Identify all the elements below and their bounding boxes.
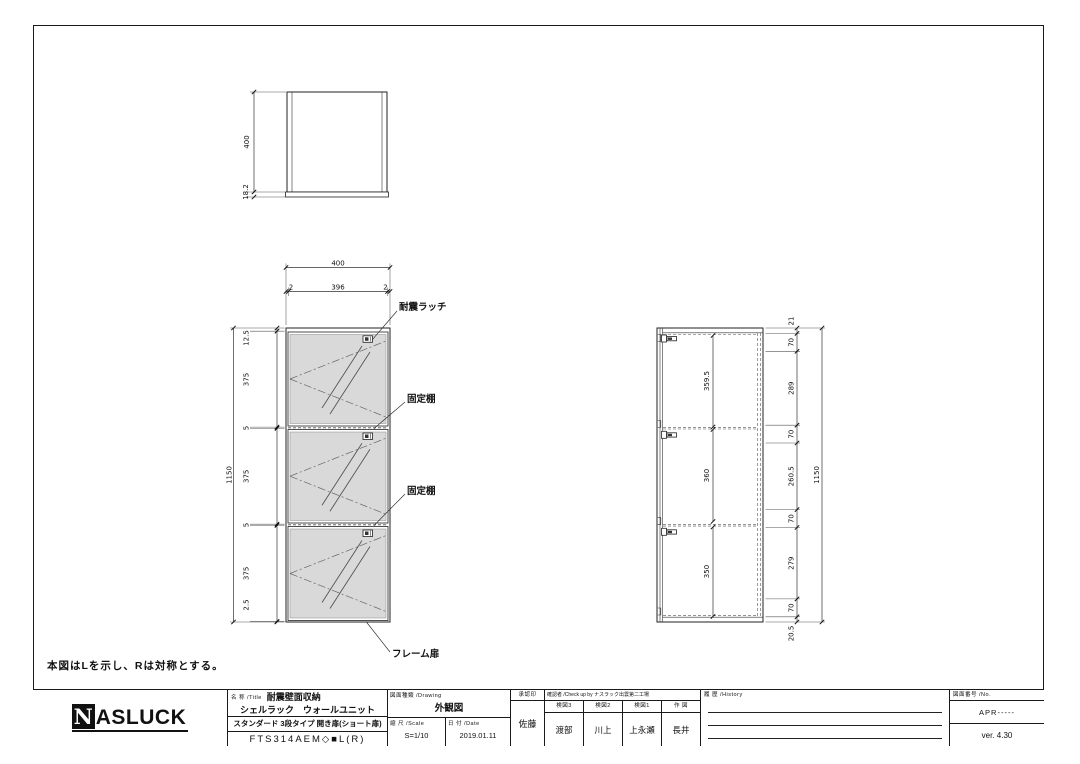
logo-n-badge: N bbox=[72, 704, 95, 729]
dim-label: 1150 bbox=[813, 466, 821, 484]
dim-label: 70 bbox=[788, 430, 796, 439]
check-col: 検図2 川上 bbox=[583, 701, 622, 746]
logo-text: ASLUCK bbox=[96, 706, 187, 729]
check-header: 確認者 /Check up by ナスラック出雲第二工場 bbox=[545, 690, 700, 701]
top-view-base-plate bbox=[286, 192, 389, 197]
front-door-3-glass bbox=[290, 529, 386, 618]
dim-label: 20.5 bbox=[788, 626, 796, 642]
front-view: 400 2 396 2 12.5 375 5 375 5 375 2.5 115… bbox=[226, 260, 447, 661]
version: ver. 4.30 bbox=[950, 724, 1044, 746]
side-view: 359.5 360 350 21 70 289 70 260.5 70 279 … bbox=[657, 317, 825, 642]
approval-cell: 承認印 佐藤 bbox=[510, 690, 544, 746]
nasluck-logo: N ASLUCK bbox=[72, 704, 189, 732]
dim-label: 400 bbox=[243, 135, 251, 148]
approval-header: 承認印 bbox=[511, 690, 544, 701]
dim-label: 350 bbox=[703, 565, 711, 578]
latch-icon bbox=[363, 433, 373, 440]
label-frame-door: フレーム扉 bbox=[392, 648, 440, 660]
dim-label: 18.2 bbox=[242, 184, 250, 200]
dim-label: 2.5 bbox=[243, 599, 251, 610]
drawing-number: APR----- bbox=[950, 701, 1044, 724]
front-left-dim-lines bbox=[234, 328, 278, 622]
check-col-header: 検図1 bbox=[623, 701, 661, 713]
drawing-canvas: 400 18.2 400 2 396 bbox=[0, 0, 1080, 764]
check-cell: 確認者 /Check up by ナスラック出雲第二工場 検図3 渡部 検図2 … bbox=[544, 690, 700, 746]
dim-label: 5 bbox=[243, 523, 251, 527]
dim-label: 21 bbox=[788, 317, 796, 326]
check-col: 検図3 渡部 bbox=[545, 701, 583, 746]
front-left-extension-lines bbox=[230, 328, 285, 622]
front-top-extension-lines bbox=[286, 264, 390, 326]
front-door-2-glass bbox=[290, 432, 386, 521]
dim-label: 260.5 bbox=[788, 466, 796, 486]
title-block: N ASLUCK 名 称 /Title 耐震壁面収納 シェルラック ウォールユニ… bbox=[33, 689, 1044, 746]
history-row bbox=[708, 700, 942, 713]
dim-label: 400 bbox=[331, 260, 344, 268]
dim-label: 279 bbox=[788, 557, 796, 570]
check-col-name: 長井 bbox=[662, 713, 700, 746]
check-col-name: 上永瀬 bbox=[623, 713, 661, 746]
dim-label: 375 bbox=[243, 470, 251, 483]
dim-label: 2 bbox=[383, 284, 387, 292]
number-header: 図面番号 /No. bbox=[950, 690, 1044, 701]
front-left-dim-ticks bbox=[231, 326, 279, 624]
dim-label: 360 bbox=[703, 469, 711, 482]
top-view-carcass bbox=[287, 92, 387, 192]
latch-icon bbox=[363, 530, 373, 537]
check-col-header: 検図2 bbox=[584, 701, 622, 713]
dim-label: 5 bbox=[243, 426, 251, 430]
logo-cell: N ASLUCK bbox=[33, 690, 227, 746]
check-col-name: 渡部 bbox=[545, 713, 583, 746]
check-col-name: 川上 bbox=[584, 713, 622, 746]
front-door-1-glass bbox=[290, 335, 386, 424]
dim-label: 359.5 bbox=[703, 371, 711, 391]
dim-label: 375 bbox=[243, 567, 251, 580]
dim-label: 70 bbox=[788, 338, 796, 347]
label-fixed-shelf: 固定棚 bbox=[407, 393, 436, 405]
label-fixed-shelf: 固定棚 bbox=[407, 485, 436, 497]
top-view-extension-lines bbox=[246, 92, 286, 197]
drawing-header: 図面種類 /Drawing bbox=[390, 691, 442, 699]
orientation-note: 本図はLを示し、Rは対称とする。 bbox=[47, 658, 224, 673]
title-cell: 名 称 /Title 耐震壁面収納 シェルラック ウォールユニット スタンダード… bbox=[227, 690, 387, 746]
drawing-number-cell: 図面番号 /No. APR----- ver. 4.30 bbox=[949, 690, 1044, 746]
title-header: 名 称 /Title bbox=[231, 693, 262, 701]
dim-label: 289 bbox=[788, 382, 796, 395]
check-col: 作 図 長井 bbox=[661, 701, 700, 746]
approval-name: 佐藤 bbox=[511, 701, 544, 746]
history-header: 履 歴 /History bbox=[701, 690, 949, 700]
dim-label: 70 bbox=[788, 603, 796, 612]
date-header: 日 付 /Date bbox=[448, 719, 480, 727]
top-view: 400 18.2 bbox=[242, 90, 389, 200]
dim-label: 1150 bbox=[226, 466, 234, 484]
check-col: 検図1 上永瀬 bbox=[622, 701, 661, 746]
dim-label: 2 bbox=[289, 284, 293, 292]
dim-label: 70 bbox=[788, 514, 796, 523]
product-series: シェルラック ウォールユニット bbox=[228, 703, 387, 717]
check-col-header: 作 図 bbox=[662, 701, 700, 713]
check-col-header: 検図3 bbox=[545, 701, 583, 713]
dim-label: 12.5 bbox=[243, 330, 251, 346]
product-category: 耐震壁面収納 bbox=[267, 690, 321, 703]
history-row bbox=[708, 713, 942, 726]
history-cell: 履 歴 /History bbox=[700, 690, 949, 746]
latch-icon bbox=[363, 336, 373, 343]
scale-header: 縮 尺 /Scale bbox=[390, 719, 424, 727]
product-type: スタンダード 3段タイプ 開き扉(ショート扉) bbox=[228, 717, 387, 732]
dim-label: 396 bbox=[331, 284, 345, 292]
model-number: FTS314AEM◇■L(R) bbox=[228, 732, 387, 747]
label-seismic-latch: 耐震ラッチ bbox=[399, 301, 447, 313]
history-row bbox=[708, 726, 942, 739]
drawing-type-cell: 図面種類 /Drawing 外観図 縮 尺 /Scale S=1/10 日 付 … bbox=[387, 690, 510, 746]
dim-label: 375 bbox=[243, 373, 251, 386]
